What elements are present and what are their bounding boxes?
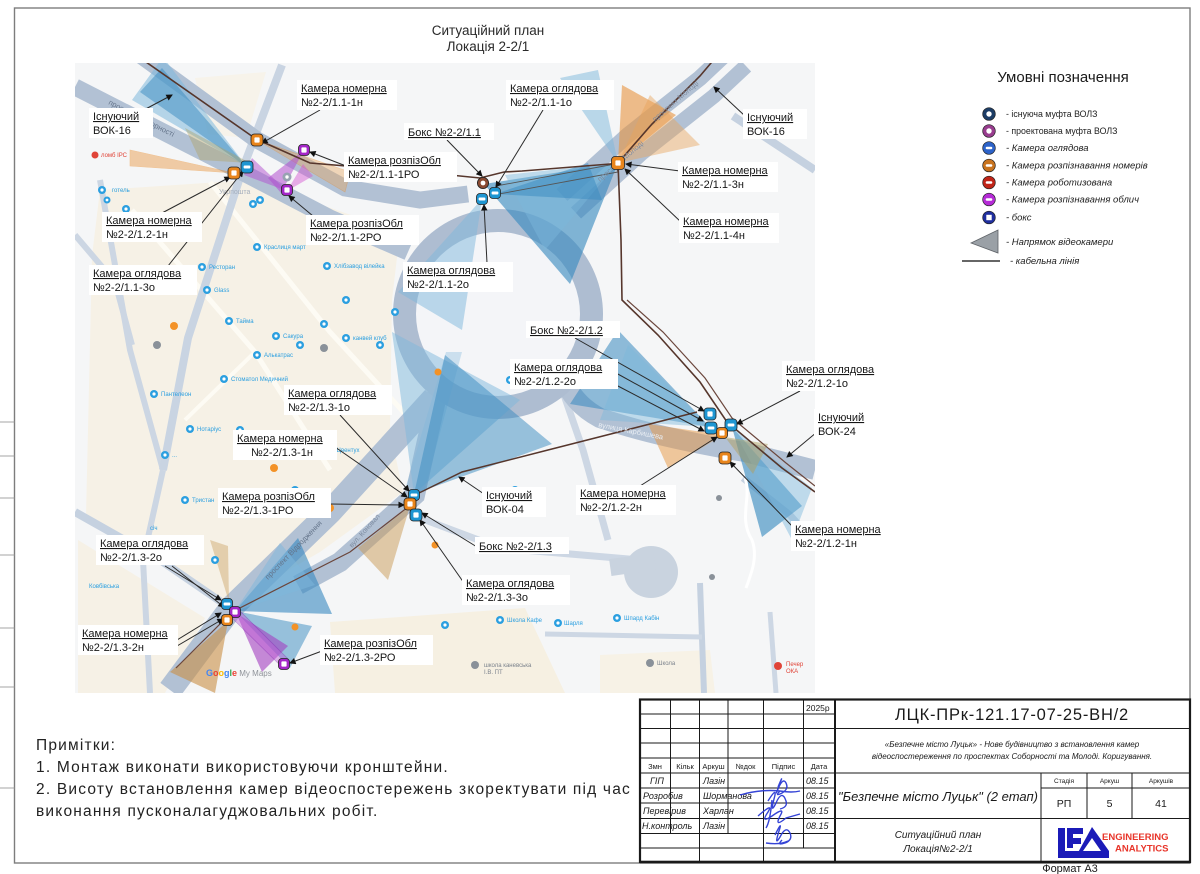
svg-text:РП: РП [1057, 798, 1072, 810]
svg-text:№2-2/1.3-2РО: №2-2/1.3-2РО [324, 652, 396, 664]
svg-text:№2-2/1.2-1о: №2-2/1.2-1о [786, 378, 848, 390]
svg-text:№2-2/1.2-2н: №2-2/1.2-2н [580, 502, 642, 514]
svg-text:Ситуаційний план: Ситуаційний план [895, 830, 982, 841]
svg-text:Камера оглядова: Камера оглядова [466, 578, 555, 590]
svg-text:ЛЦК-ПРк-121.17-07-25-ВН/2: ЛЦК-ПРк-121.17-07-25-ВН/2 [895, 706, 1129, 724]
svg-text:Нотаріус: Нотаріус [197, 427, 221, 433]
svg-text:Умовні позначення: Умовні позначення [997, 69, 1129, 86]
svg-text:Бокс №2-2/1.1: Бокс №2-2/1.1 [408, 127, 481, 139]
svg-text:Розробив: Розробив [643, 791, 683, 801]
svg-text:Алькатрас: Алькатрас [264, 353, 293, 359]
svg-text:№2-2/1.1-4н: №2-2/1.1-4н [683, 230, 745, 242]
svg-text:Тристан: Тристан [192, 498, 214, 504]
svg-text:Камера номерна: Камера номерна [683, 216, 770, 228]
svg-text:5: 5 [1107, 798, 1113, 810]
svg-text:Бокс №2-2/1.3: Бокс №2-2/1.3 [479, 541, 552, 553]
svg-text:Примітки:: Примітки: [36, 737, 116, 754]
svg-text:- Камера роботизована: - Камера роботизована [1006, 178, 1112, 189]
svg-text:Дата: Дата [811, 762, 828, 771]
svg-text:Шпард Кабін: Шпард Кабін [624, 616, 659, 622]
svg-text:Камера оглядова: Камера оглядова [514, 362, 603, 374]
svg-text:Змн: Змн [648, 762, 662, 771]
svg-text:Локація№2-2/1: Локація№2-2/1 [902, 844, 973, 855]
svg-text:Стоматол Медичний: Стоматол Медичний [231, 376, 288, 383]
svg-text:«Безпечне місто Луцьк» - Нове: «Безпечне місто Луцьк» - Нове будівництв… [885, 740, 1140, 749]
svg-text:- існуюча муфта ВОЛЗ: - існуюча муфта ВОЛЗ [1006, 109, 1097, 119]
svg-text:№2-2/1.1-2о: №2-2/1.1-2о [407, 279, 469, 291]
svg-text:1. Монтаж виконати використову: 1. Монтаж виконати використовуючи кроншт… [36, 759, 449, 776]
svg-text:ВОК-16: ВОК-16 [93, 125, 131, 137]
svg-text:Камера номерна: Камера номерна [682, 165, 769, 177]
svg-text:№2-2/1.3-2н: №2-2/1.3-2н [82, 642, 144, 654]
svg-text:ENGINEERING: ENGINEERING [1102, 832, 1169, 843]
svg-text:Хлібзавод вілейка: Хлібзавод вілейка [334, 263, 385, 270]
svg-text:ВОК-24: ВОК-24 [818, 426, 856, 438]
svg-text:Пантелеон: Пантелеон [161, 392, 191, 398]
svg-text:Камера номерна: Камера номерна [106, 215, 193, 227]
svg-text:- Напрямок відеокамери: - Напрямок відеокамери [1006, 237, 1114, 248]
svg-text:Аркуш: Аркуш [1100, 778, 1119, 785]
svg-text:Печер: Печер [786, 662, 804, 668]
svg-text:Камера розпізОбл: Камера розпізОбл [324, 638, 417, 650]
svg-text:Glass: Glass [214, 288, 229, 294]
svg-text:Перевірив: Перевірив [643, 806, 686, 816]
svg-text:Бокс №2-2/1.2: Бокс №2-2/1.2 [530, 325, 603, 337]
svg-text:Камера оглядова: Камера оглядова [407, 265, 496, 277]
svg-text:Камера номерна: Камера номерна [301, 83, 388, 95]
svg-text:- проектована муфта ВОЛЗ: - проектована муфта ВОЛЗ [1006, 126, 1117, 136]
svg-text:виконання пусконалагуджовальни: виконання пусконалагуджовальних робіт. [36, 803, 378, 820]
svg-text:Камера оглядова: Камера оглядова [93, 268, 182, 280]
svg-text:Шарля: Шарля [564, 621, 583, 627]
svg-text:Лазін: Лазін [702, 776, 725, 786]
svg-text:Школа Кафе: Школа Кафе [507, 618, 543, 624]
svg-text:ВОК-04: ВОК-04 [486, 504, 524, 516]
svg-text:Тайма: Тайма [236, 318, 254, 325]
svg-text:Формат А3: Формат А3 [1042, 863, 1098, 874]
svg-text:Стадія: Стадія [1054, 777, 1074, 785]
svg-text:відеоспостереження по проспект: відеоспостереження по проспектах Соборно… [872, 752, 1152, 761]
svg-text:Камера оглядова: Камера оглядова [288, 388, 377, 400]
svg-text:№2-2/1.1-2РО: №2-2/1.1-2РО [310, 232, 382, 244]
svg-text:Аркушів: Аркушів [1149, 777, 1174, 785]
svg-text:ВОК-16: ВОК-16 [747, 126, 785, 138]
svg-text:№2-2/1.1-1о: №2-2/1.1-1о [510, 97, 572, 109]
svg-text:Аркуш: Аркуш [702, 762, 724, 771]
svg-text:№2-2/1.2-1н: №2-2/1.2-1н [795, 538, 857, 550]
svg-text:- Камера оглядова: - Камера оглядова [1006, 143, 1089, 154]
svg-text:Камера розпізОбл: Камера розпізОбл [222, 491, 315, 503]
svg-text:Камера розпізОбл: Камера розпізОбл [310, 218, 403, 230]
svg-text:ANALYTICS: ANALYTICS [1115, 844, 1169, 855]
svg-text:школа каневська: школа каневська [484, 663, 532, 669]
svg-text:Камера номерна: Камера номерна [237, 433, 324, 445]
svg-text:№2-2/1.1-1РО: №2-2/1.1-1РО [348, 169, 420, 181]
svg-text:Шорманова: Шорманова [703, 791, 752, 801]
svg-text:№2-2/1.3-3о: №2-2/1.3-3о [466, 592, 528, 604]
svg-text:Краслиця март: Краслиця март [264, 245, 306, 251]
svg-text:№2-2/1.3-1н: №2-2/1.3-1н [251, 447, 313, 459]
svg-text:Камера оглядова: Камера оглядова [510, 83, 599, 95]
svg-text:№док: №док [736, 762, 757, 771]
svg-text:Існуючий: Існуючий [818, 412, 864, 424]
svg-text:Камера номерна: Камера номерна [580, 488, 667, 500]
svg-text:Ситуаційний план: Ситуаційний план [432, 23, 544, 38]
svg-text:08.15: 08.15 [806, 806, 830, 816]
svg-text:08.15: 08.15 [806, 776, 830, 786]
svg-text:Школа: Школа [657, 661, 676, 667]
svg-text:- Камера розпізнавання облич: - Камера розпізнавання облич [1006, 195, 1139, 206]
svg-text:Ковбівська: Ковбівська [89, 584, 120, 590]
svg-text:Підпис: Підпис [772, 762, 796, 771]
svg-text:Камера номерна: Камера номерна [82, 628, 169, 640]
svg-text:Харлан: Харлан [702, 806, 734, 816]
svg-text:Лазін: Лазін [702, 821, 725, 831]
svg-text:№2-2/1.3-1РО: №2-2/1.3-1РО [222, 505, 294, 517]
svg-text:канвей клуб: канвей клуб [353, 335, 387, 342]
svg-text:№2-2/1.2-2о: №2-2/1.2-2о [514, 376, 576, 388]
svg-text:№2-2/1.3-1о: №2-2/1.3-1о [288, 402, 350, 414]
svg-text:Камера номерна: Камера номерна [795, 524, 882, 536]
svg-text:41: 41 [1155, 798, 1167, 810]
svg-text:Існуючий: Існуючий [486, 490, 532, 502]
svg-text:№2-2/1.2-1н: №2-2/1.2-1н [106, 229, 168, 241]
svg-text:2. Висоту встановлення камер в: 2. Висоту встановлення камер відеоспосте… [36, 781, 631, 798]
svg-text:І.В. ПТ: І.В. ПТ [484, 670, 503, 676]
svg-text:Сакура: Сакура [283, 334, 304, 340]
svg-text:- Камера розпізнавання номерів: - Камера розпізнавання номерів [1006, 161, 1148, 172]
svg-text:№2-2/1.3-2о: №2-2/1.3-2о [100, 552, 162, 564]
svg-text:08.15: 08.15 [806, 821, 830, 831]
svg-text:Н.контроль: Н.контроль [642, 821, 692, 831]
svg-text:08.15: 08.15 [806, 791, 830, 801]
svg-text:Камера розпізОбл: Камера розпізОбл [348, 155, 441, 167]
svg-text:- бокс: - бокс [1006, 213, 1032, 224]
svg-text:"Безпечне місто Луцьк" (2 етап: "Безпечне місто Луцьк" (2 етап) [838, 789, 1038, 804]
svg-text:ОКА: ОКА [786, 669, 798, 675]
svg-text:2025р: 2025р [806, 703, 830, 713]
svg-text:№2-2/1.1-1н: №2-2/1.1-1н [301, 97, 363, 109]
svg-text:Локація 2-2/1: Локація 2-2/1 [447, 39, 530, 54]
svg-text:№2-2/1.1-3о: №2-2/1.1-3о [93, 282, 155, 294]
svg-text:ломб ІРС: ломб ІРС [101, 153, 128, 159]
svg-text:Google My Maps: Google My Maps [206, 668, 272, 678]
svg-text:- кабельна лінія: - кабельна лінія [1010, 256, 1079, 267]
svg-text:Камера оглядова: Камера оглядова [100, 538, 189, 550]
svg-text:Існуючий: Існуючий [747, 112, 793, 124]
svg-text:Ресторан: Ресторан [209, 265, 235, 271]
svg-text:№2-2/1.1-3н: №2-2/1.1-3н [682, 179, 744, 191]
svg-text:січ: січ [150, 526, 157, 532]
svg-text:Камера оглядова: Камера оглядова [786, 364, 875, 376]
svg-text:готель: готель [112, 188, 130, 194]
svg-text:ГІП: ГІП [650, 776, 664, 786]
svg-text:...: ... [172, 453, 177, 459]
svg-text:Кільк: Кільк [676, 762, 694, 771]
svg-text:Існуючий: Існуючий [93, 111, 139, 123]
